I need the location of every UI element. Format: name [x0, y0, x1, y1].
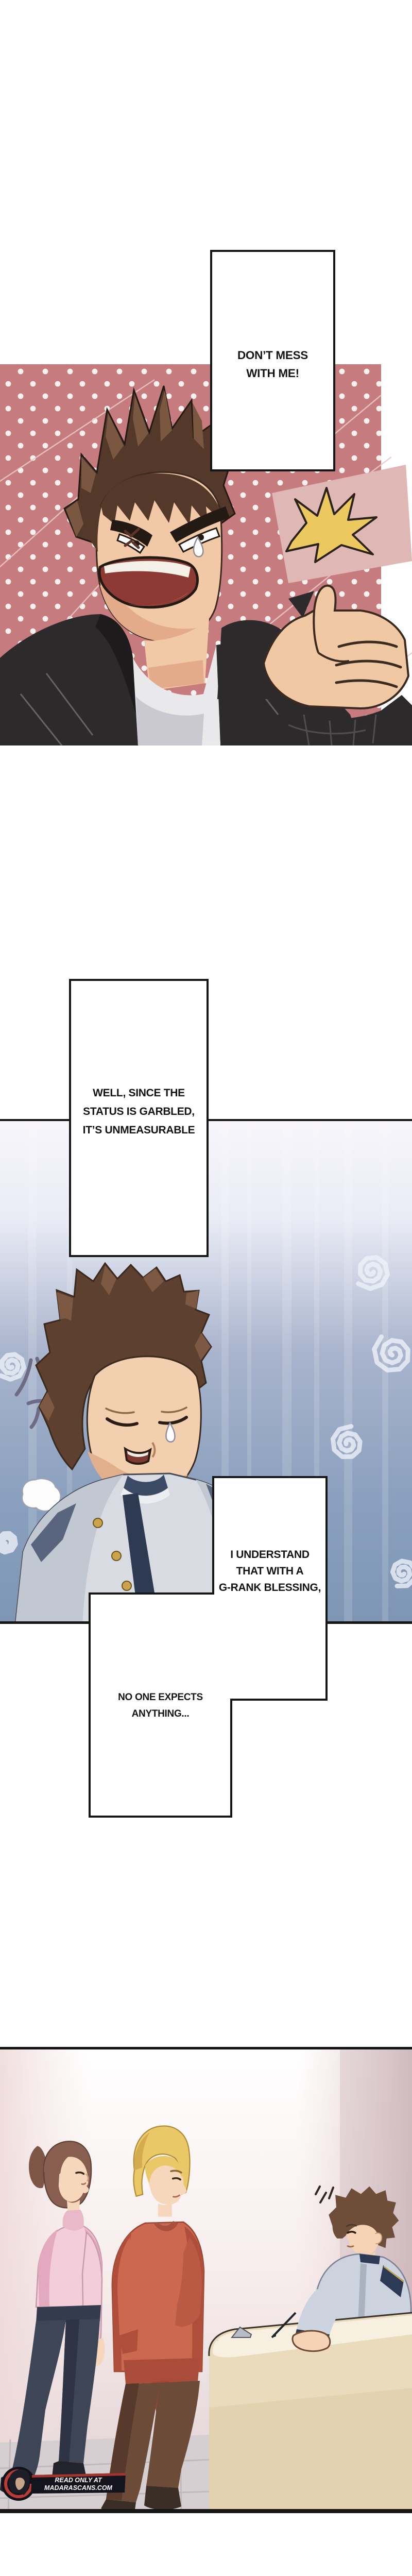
- svg-text:MADARASCANS.COM: MADARASCANS.COM: [44, 2484, 113, 2492]
- svg-text:READ ONLY AT: READ ONLY AT: [55, 2477, 102, 2484]
